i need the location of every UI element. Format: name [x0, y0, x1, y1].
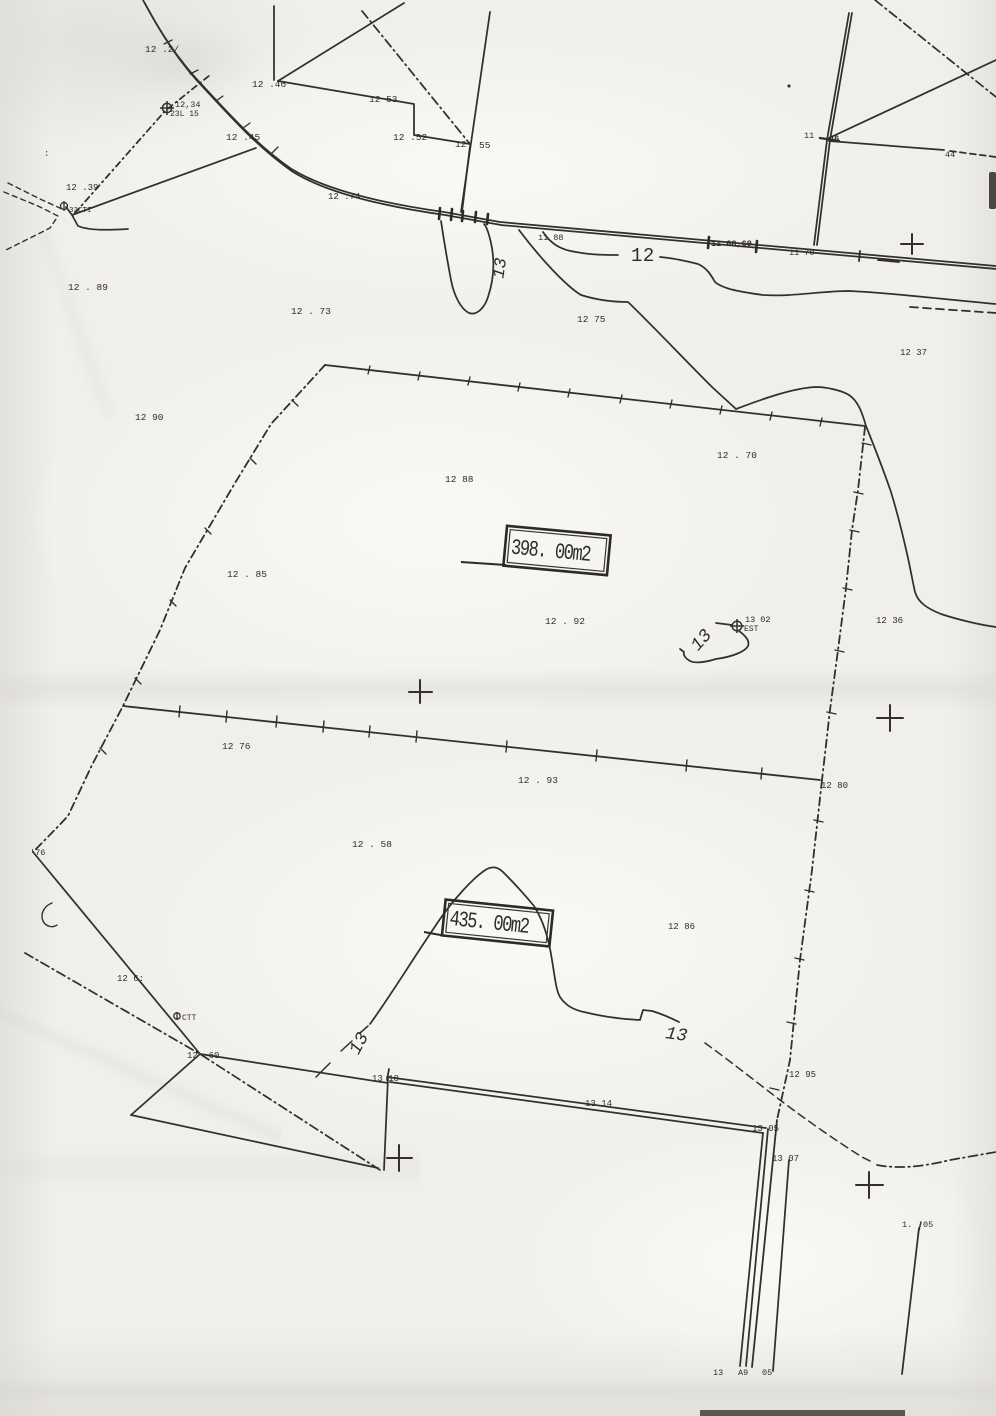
svg-text:12 . 92: 12 . 92 — [545, 616, 585, 627]
svg-text:12 36: 12 36 — [876, 616, 903, 626]
svg-text:13 18: 13 18 — [372, 1074, 399, 1084]
svg-text:1.: 1. — [902, 1220, 912, 1230]
svg-text:13 02: 13 02 — [745, 615, 771, 625]
svg-text:11 68,69: 11 68,69 — [711, 239, 752, 249]
svg-text:12 .52: 12 .52 — [393, 132, 428, 143]
svg-text:13: 13 — [713, 1368, 723, 1378]
svg-text:12 76: 12 76 — [222, 741, 251, 752]
svg-text:12 86: 12 86 — [668, 922, 695, 932]
svg-text:13 05: 13 05 — [752, 1124, 779, 1134]
svg-text:12 .45: 12 .45 — [226, 132, 261, 143]
svg-text:12,34: 12,34 — [175, 100, 201, 110]
svg-text:12 6:: 12 6: — [117, 974, 144, 984]
svg-text:12 . 58: 12 . 58 — [352, 839, 392, 850]
svg-text:55: 55 — [479, 140, 491, 151]
svg-text:12 . 70: 12 . 70 — [717, 450, 757, 461]
svg-text:44: 44 — [945, 150, 955, 160]
svg-text:12 . 89: 12 . 89 — [68, 282, 108, 293]
svg-text:12 .39: 12 .39 — [66, 183, 98, 193]
svg-text:CTT: CTT — [182, 1014, 197, 1023]
svg-text:46: 46 — [829, 134, 839, 144]
svg-text:05: 05 — [762, 1368, 772, 1378]
svg-text::: : — [44, 149, 49, 159]
svg-text:11 88: 11 88 — [538, 233, 564, 243]
svg-text:12 37: 12 37 — [900, 348, 927, 358]
svg-text:13 07: 13 07 — [772, 1154, 799, 1164]
svg-text:05: 05 — [923, 1220, 933, 1230]
svg-text:23L 15: 23L 15 — [170, 110, 199, 119]
svg-text:11 70: 11 70 — [789, 248, 815, 258]
svg-text:12 . 93: 12 . 93 — [518, 775, 558, 786]
svg-text:32CTI: 32CTI — [69, 207, 92, 215]
svg-text:13: 13 — [490, 257, 512, 280]
svg-text:13 14: 13 14 — [585, 1099, 612, 1109]
svg-text:12 53: 12 53 — [369, 94, 398, 105]
svg-text:12 75: 12 75 — [577, 314, 606, 325]
svg-text:EST: EST — [744, 625, 759, 634]
svg-text:12 .60: 12 .60 — [187, 1051, 219, 1061]
svg-text:12 . 73: 12 . 73 — [291, 306, 331, 317]
svg-text:12 . 85: 12 . 85 — [227, 569, 267, 580]
svg-text:12 .46: 12 .46 — [252, 79, 287, 90]
svg-text:13: 13 — [664, 1024, 688, 1047]
svg-text:12 88: 12 88 — [445, 474, 474, 485]
svg-text:A9: A9 — [738, 1368, 748, 1378]
svg-text:12 90: 12 90 — [135, 412, 164, 423]
svg-text:12 .74: 12 .74 — [328, 192, 360, 202]
svg-text:11: 11 — [804, 131, 814, 141]
svg-text:'76: '76 — [30, 848, 45, 858]
svg-text:12 .2/: 12 .2/ — [145, 44, 180, 55]
svg-text:12 80: 12 80 — [821, 781, 848, 791]
svg-text:12: 12 — [631, 245, 655, 267]
svg-text:12 95: 12 95 — [789, 1070, 816, 1080]
svg-text:12: 12 — [455, 139, 467, 150]
